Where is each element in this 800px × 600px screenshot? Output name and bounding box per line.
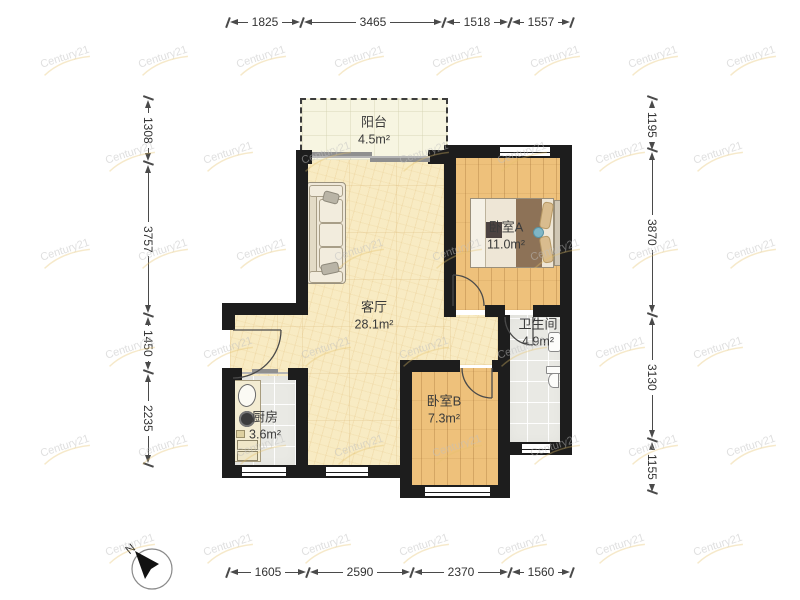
label-balcony: 阳台 4.5m² — [358, 114, 390, 147]
room-name: 卫生间 — [518, 316, 557, 333]
room-name: 卧室A — [487, 219, 525, 236]
room-name: 阳台 — [358, 114, 390, 131]
room-name: 厨房 — [249, 409, 281, 426]
label-living-room: 客厅 28.1m² — [355, 299, 394, 332]
room-name: 卧室B — [427, 393, 462, 410]
entrance-door-arc — [233, 330, 281, 378]
room-area: 4.5m² — [358, 131, 390, 147]
room-area: 11.0m² — [487, 236, 525, 252]
room-area: 4.9m² — [518, 333, 557, 349]
floorplan-canvas: 阳台 4.5m² 客厅 28.1m² 卧室A 11.0m² 卧室B 7.3m² … — [0, 0, 800, 600]
bedroom-a-door-arc — [453, 275, 484, 306]
room-area: 28.1m² — [355, 316, 394, 332]
room-area: 7.3m² — [427, 410, 462, 426]
label-kitchen: 厨房 3.6m² — [249, 409, 281, 442]
bedroom-b-door-arc — [462, 368, 492, 398]
door-swings — [0, 0, 800, 600]
room-name: 客厅 — [355, 299, 394, 316]
room-area: 3.6m² — [249, 426, 281, 442]
label-bedroom-b: 卧室B 7.3m² — [427, 393, 462, 426]
label-bathroom: 卫生间 4.9m² — [518, 316, 557, 349]
label-bedroom-a: 卧室A 11.0m² — [487, 219, 525, 252]
